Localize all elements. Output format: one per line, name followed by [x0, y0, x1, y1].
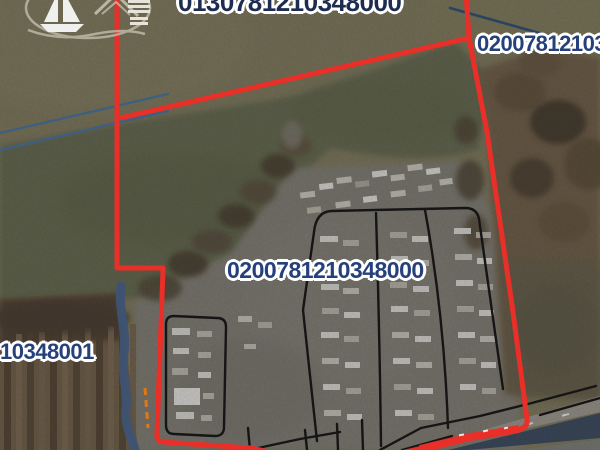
photo-grain-light: [0, 0, 600, 450]
parcel-label-right: 0200781210348000: [477, 33, 600, 55]
parcel-label-top: 0130781210348000: [178, 0, 401, 15]
aerial-map-image: [0, 0, 600, 450]
map-canvas[interactable]: 0130781210348000 0200781210348000 020078…: [0, 0, 600, 450]
aerial-basemap: [0, 0, 600, 450]
parcel-label-left: 10348001: [0, 341, 94, 363]
parcel-label-center: 0200781210348000: [227, 259, 424, 282]
